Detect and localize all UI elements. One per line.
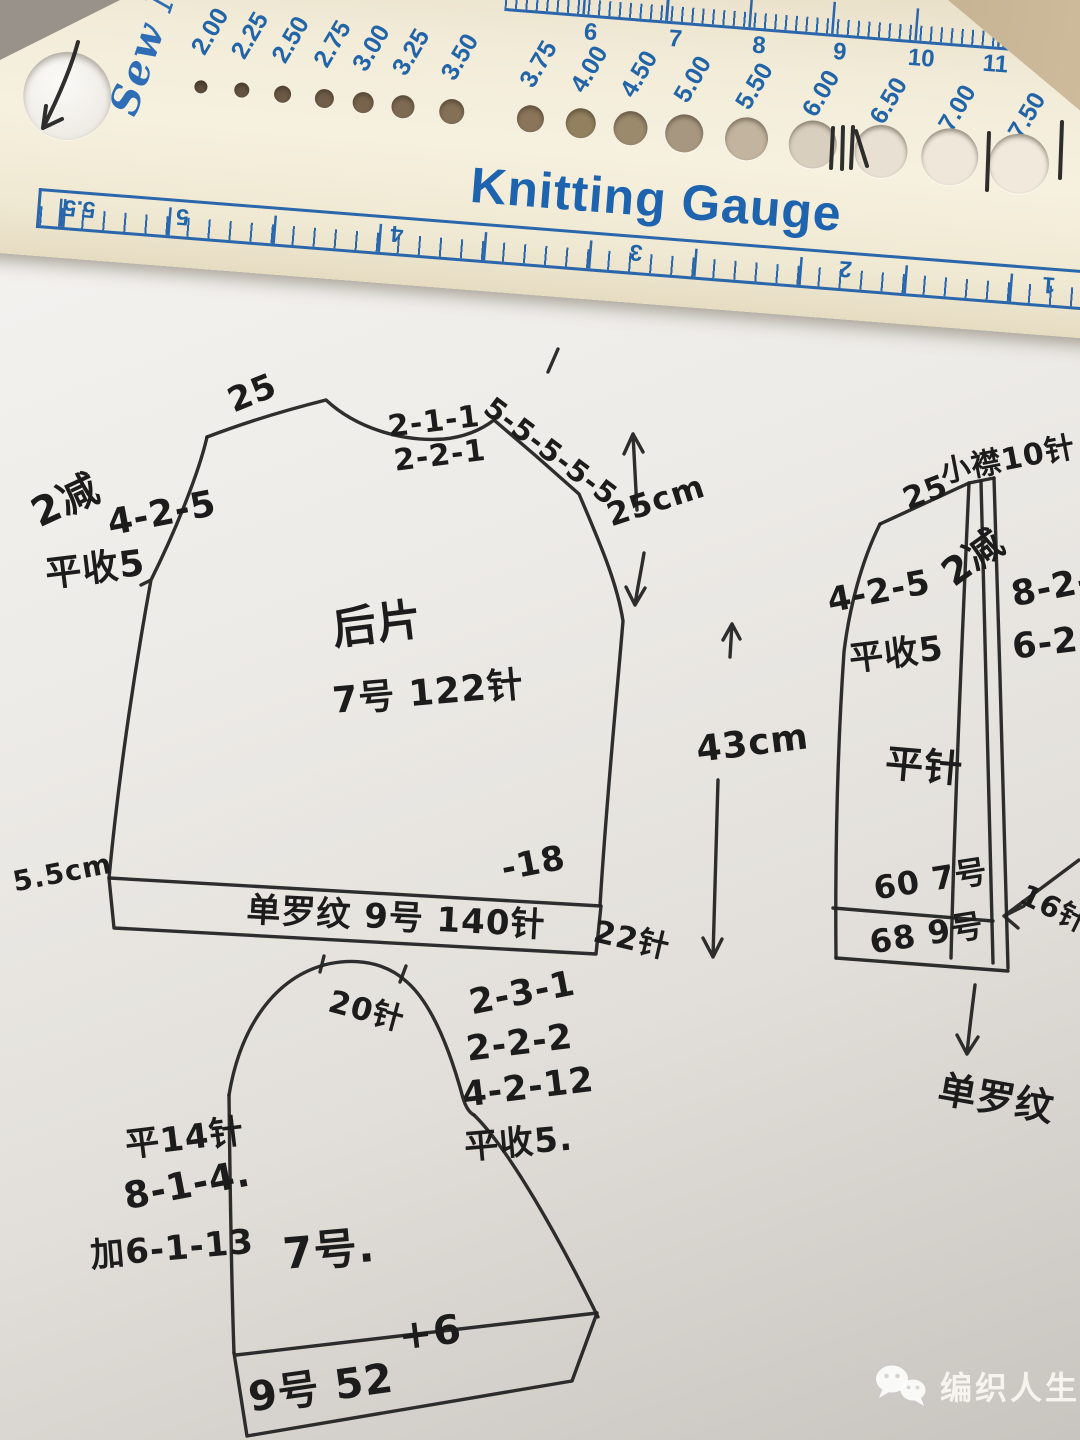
cm-mark: 4 xyxy=(389,220,404,248)
gauge-hole xyxy=(987,132,1052,197)
gauge-hole xyxy=(194,80,208,94)
gauge-hole xyxy=(664,113,705,154)
gauge-hole xyxy=(723,116,769,162)
wechat-icon xyxy=(872,1362,930,1410)
back-piece-title: 后片 xyxy=(328,583,425,657)
sleeve-cap-bindoff: 平收5. xyxy=(462,1111,574,1169)
hole-size-label: 3.50 xyxy=(435,29,485,86)
inch-mark: 9 xyxy=(832,38,848,67)
cm-mark: 3 xyxy=(629,239,644,267)
hole-size-label: 3.75 xyxy=(514,36,564,93)
inch-mark: 8 xyxy=(751,32,767,61)
cm-mark: 5 xyxy=(175,203,190,231)
cm-mark: 2 xyxy=(838,255,853,283)
hole-size-label: 5.00 xyxy=(668,51,718,108)
cm-mark: 5.5 xyxy=(62,194,96,223)
gauge-hole xyxy=(516,104,545,133)
gauge-hole xyxy=(352,91,375,114)
inch-mark: 10 xyxy=(907,44,936,74)
gauge-hole xyxy=(612,110,649,147)
hole-size-label: 5.50 xyxy=(730,58,780,115)
hole-size-label: 6.00 xyxy=(797,65,847,122)
cm-mark: 1 xyxy=(1041,271,1056,299)
gauge-hole xyxy=(919,126,980,187)
inch-mark: 7 xyxy=(668,25,684,54)
gauge-hole xyxy=(234,82,250,98)
hole-size-label: 4.50 xyxy=(615,46,665,103)
gauge-hole xyxy=(787,119,839,171)
sleeve-cuff-plus: +6 xyxy=(396,1306,464,1359)
gauge-hole xyxy=(314,88,334,108)
hole-size-label: 4.00 xyxy=(565,41,615,98)
sleeve-needle: 7号. xyxy=(280,1212,377,1282)
hole-size-label: 6.50 xyxy=(864,73,914,130)
gauge-hole xyxy=(438,98,465,125)
gauge-hole xyxy=(273,85,291,103)
hole-size-label: 2.00 xyxy=(186,3,236,60)
front-stitch-type: 平针 xyxy=(883,732,966,794)
gauge-hole xyxy=(391,94,416,119)
watermark-text: 编织人生 xyxy=(940,1363,1080,1409)
gauge-hole xyxy=(565,107,597,139)
watermark: 编织人生 xyxy=(872,1362,1080,1410)
hole-size-label: 7.00 xyxy=(933,80,983,137)
gauge-hole xyxy=(852,123,909,180)
photo-scene: 6 7 8 9 10 11 12 Sew Mate® 10.0 2.00 2.2… xyxy=(0,0,1080,1440)
big-gauge-hole-10mm xyxy=(20,49,115,144)
inch-mark: 11 xyxy=(982,50,1009,80)
